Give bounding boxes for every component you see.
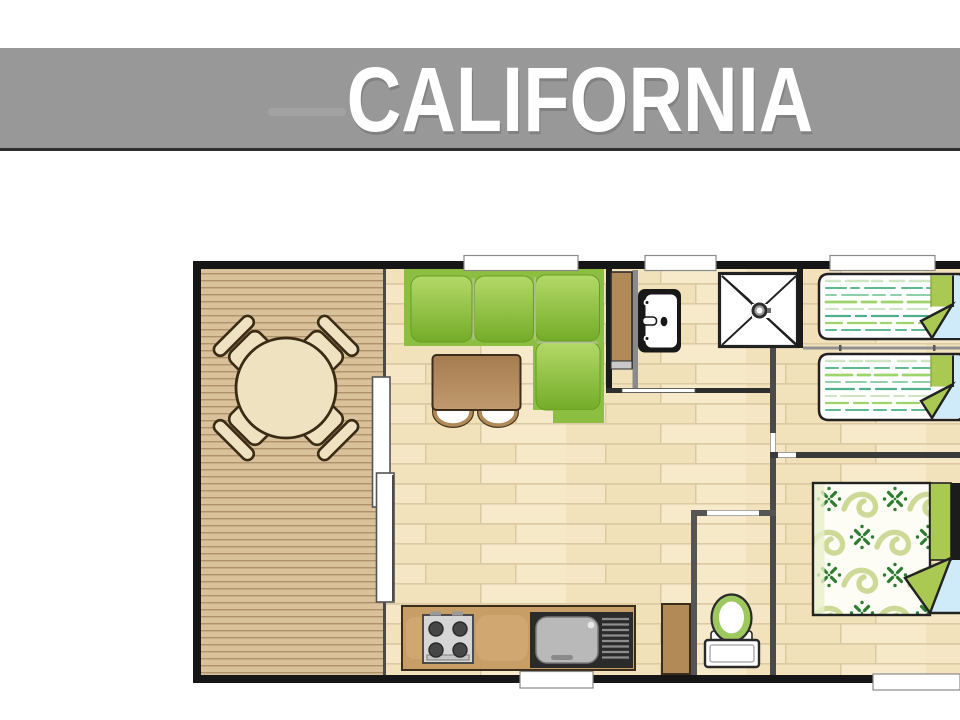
svg-text:CALIFORNIA: CALIFORNIA [347,48,814,151]
